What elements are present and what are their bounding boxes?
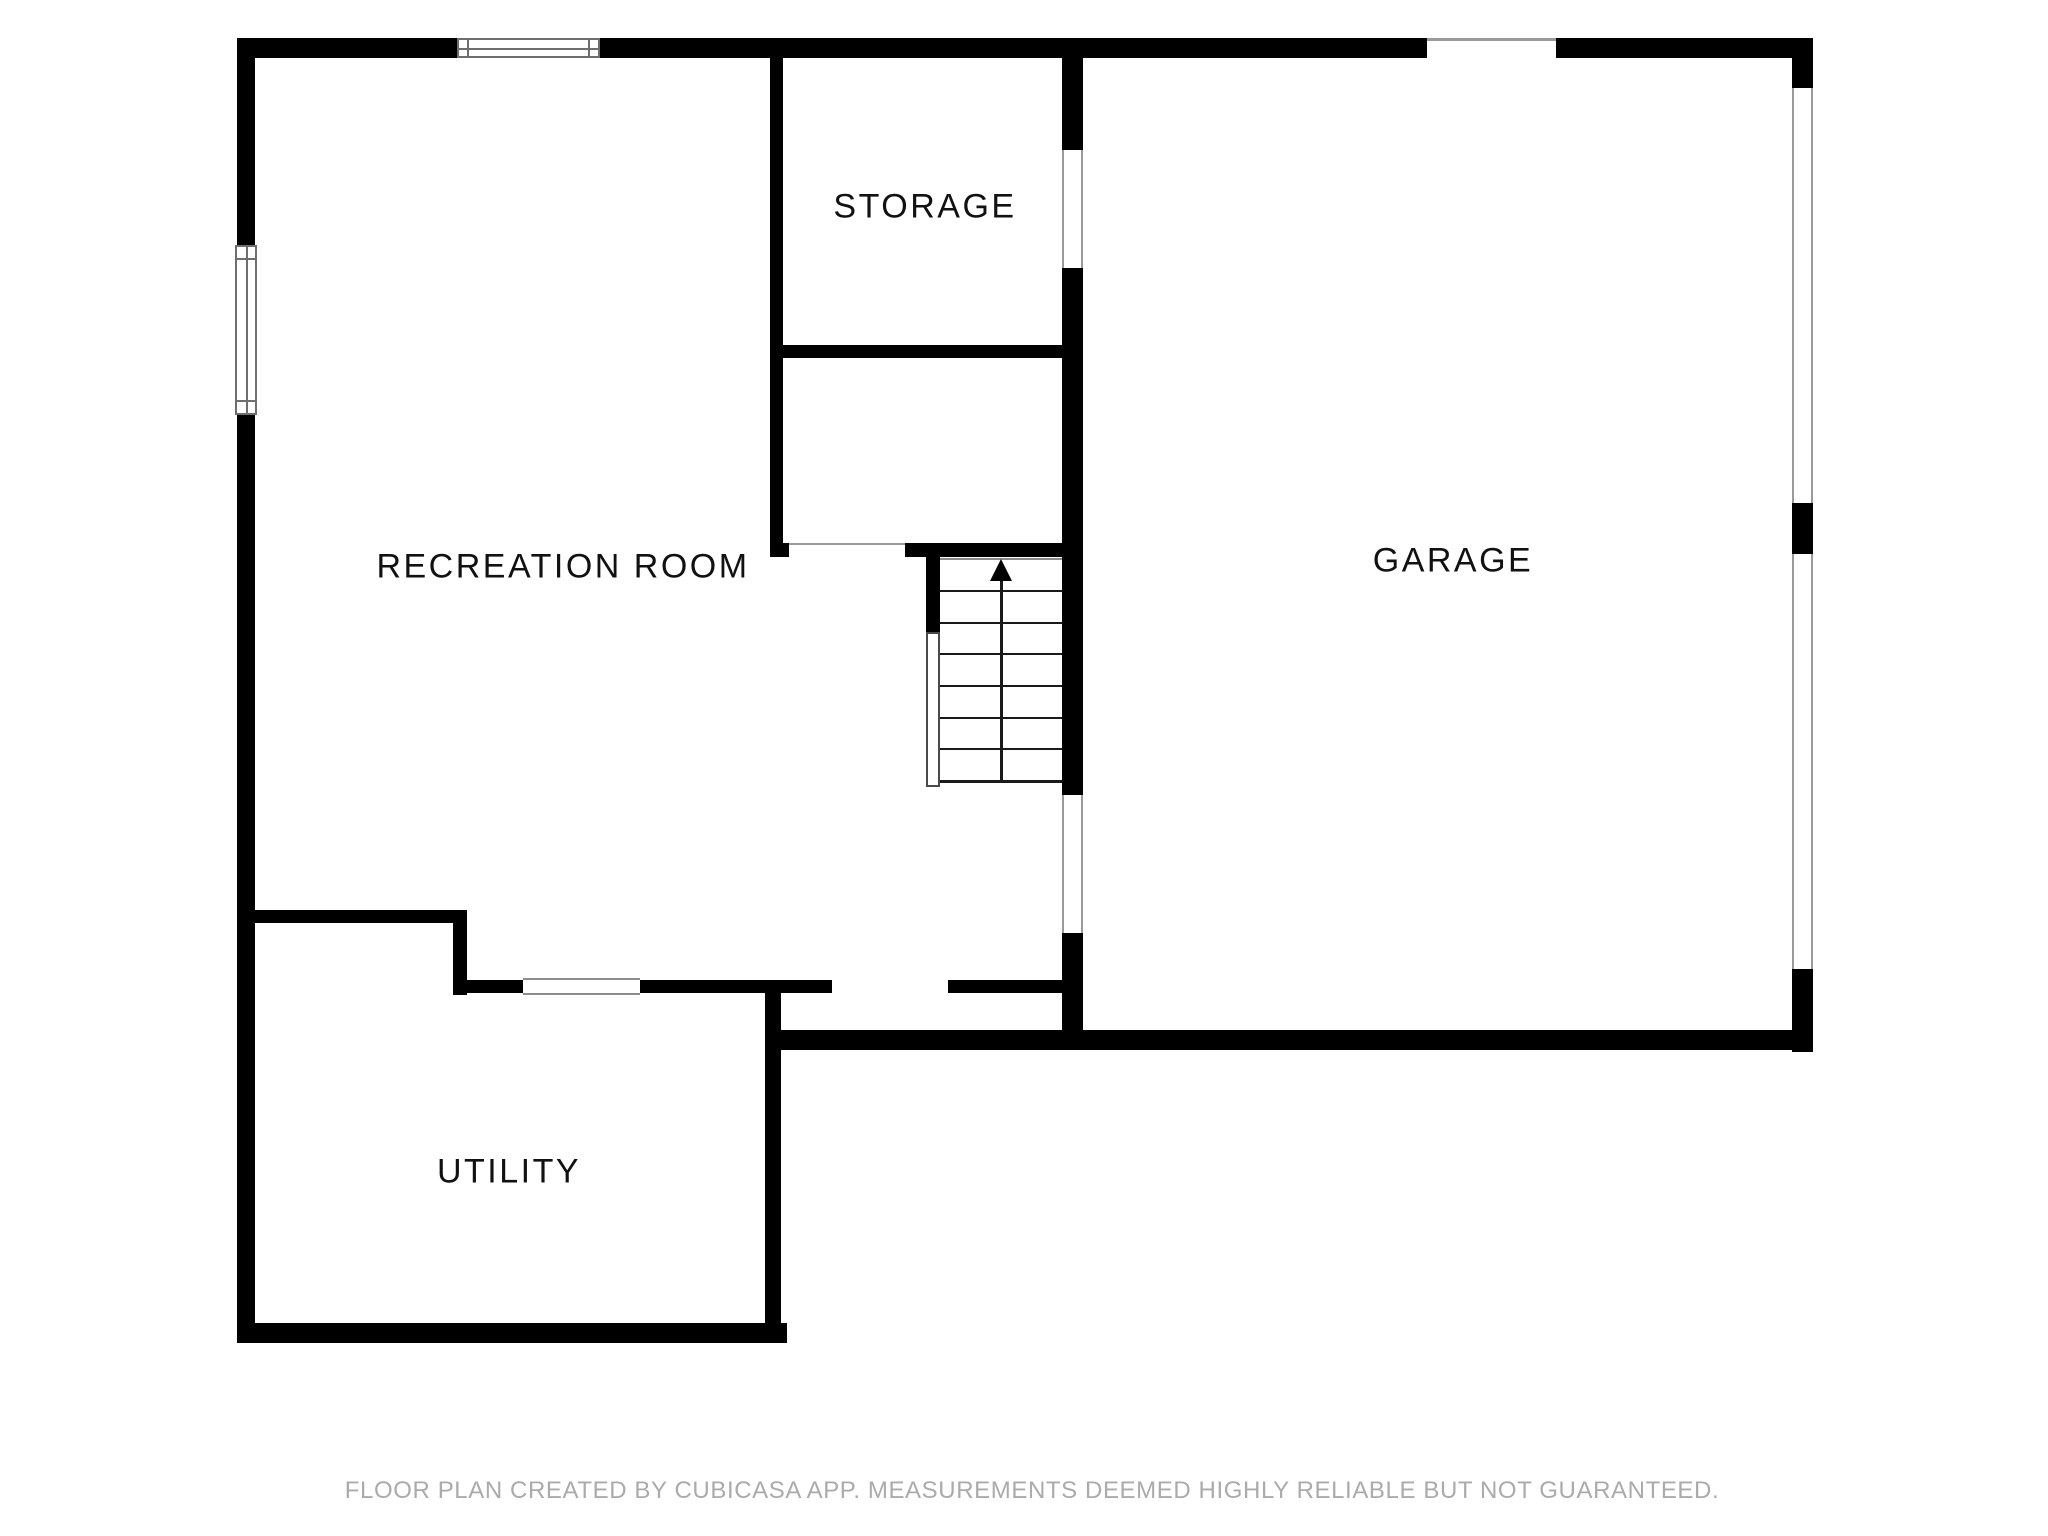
window-recreation-left [235,245,257,415]
window-frame-cap [237,258,255,260]
window-mullion [459,48,598,50]
window-garage-right-lower [1792,554,1813,969]
floor-plan-page: RECREATION ROOM STORAGE GARAGE UTILITY F… [0,0,2048,1536]
exterior-wall-garage-bottom [780,1030,1813,1050]
room-label-utility: UTILITY [437,1153,581,1192]
wall-utility-top [237,910,467,923]
door-recreation-to-garage [1062,795,1083,933]
exterior-wall-left [237,38,255,1343]
stairs-handrail [926,632,940,787]
wall-storage-bottom [770,345,1083,358]
exterior-wall-top-right-segment [1556,38,1813,58]
wall-storage-left [770,58,783,557]
stairs-bottom-edge [940,780,1062,783]
exterior-wall-utility-bottom [237,1323,787,1343]
window-mullion [246,247,248,413]
opening-recreation-to-hall [832,980,948,993]
room-label-recreation: RECREATION ROOM [376,548,749,587]
stairs-up-arrow-icon [990,559,1012,581]
window-utility-bottom [523,978,640,995]
wall-utility-right [765,980,781,1343]
garage-door-opening [1427,38,1556,58]
stairs-direction-line [1000,580,1003,780]
window-frame-cap [588,40,590,56]
window-frame-cap [467,40,469,56]
opening-closet [789,543,905,557]
exterior-wall-top-left-segment [237,38,1427,58]
footer-disclaimer: FLOOR PLAN CREATED BY CUBICASA APP. MEAS… [345,1477,1720,1505]
room-label-garage: GARAGE [1373,542,1533,581]
door-storage-to-garage [1062,150,1083,268]
window-recreation-top [457,38,600,58]
window-garage-right-upper [1792,88,1813,503]
window-frame-cap [237,400,255,402]
staircase [926,557,1083,787]
room-label-storage: STORAGE [833,188,1016,227]
